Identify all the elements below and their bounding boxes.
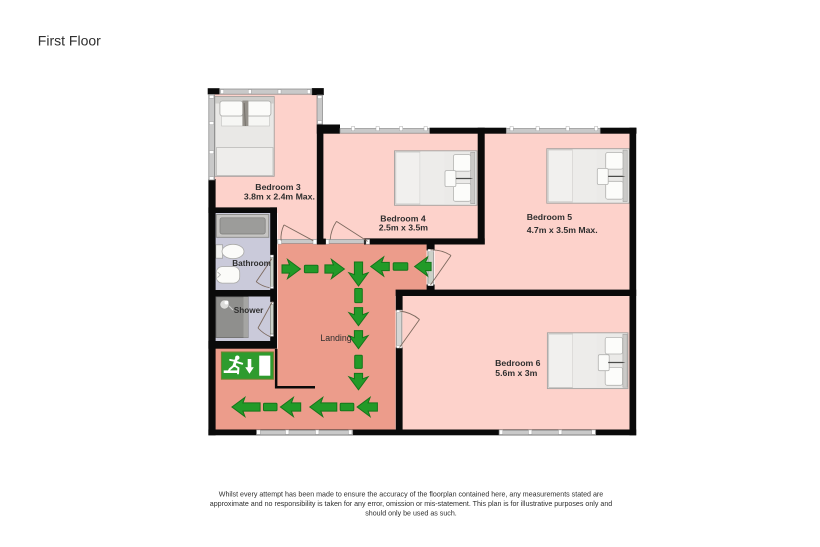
- svg-text:Bedroom 5: Bedroom 5: [527, 212, 573, 222]
- svg-text:Bedroom 6: Bedroom 6: [495, 358, 541, 368]
- svg-text:should only be used as such.: should only be used as such.: [365, 509, 457, 517]
- svg-text:Whilst every attempt has been: Whilst every attempt has been made to en…: [219, 490, 604, 498]
- svg-text:Bedroom 3: Bedroom 3: [255, 182, 301, 192]
- svg-text:Landing: Landing: [320, 333, 351, 343]
- svg-text:Shower: Shower: [234, 306, 264, 315]
- svg-text:First Floor: First Floor: [38, 33, 101, 49]
- svg-text:Bathroom: Bathroom: [232, 259, 271, 268]
- svg-text:approximate and no responsibil: approximate and no responsibility is tak…: [210, 500, 612, 508]
- svg-text:2.5m x 3.5m: 2.5m x 3.5m: [379, 223, 429, 233]
- svg-text:3.8m x 2.4m Max.: 3.8m x 2.4m Max.: [244, 192, 315, 202]
- svg-text:4.7m x 3.5m Max.: 4.7m x 3.5m Max.: [527, 225, 598, 235]
- svg-text:5.6m x 3m: 5.6m x 3m: [495, 368, 537, 378]
